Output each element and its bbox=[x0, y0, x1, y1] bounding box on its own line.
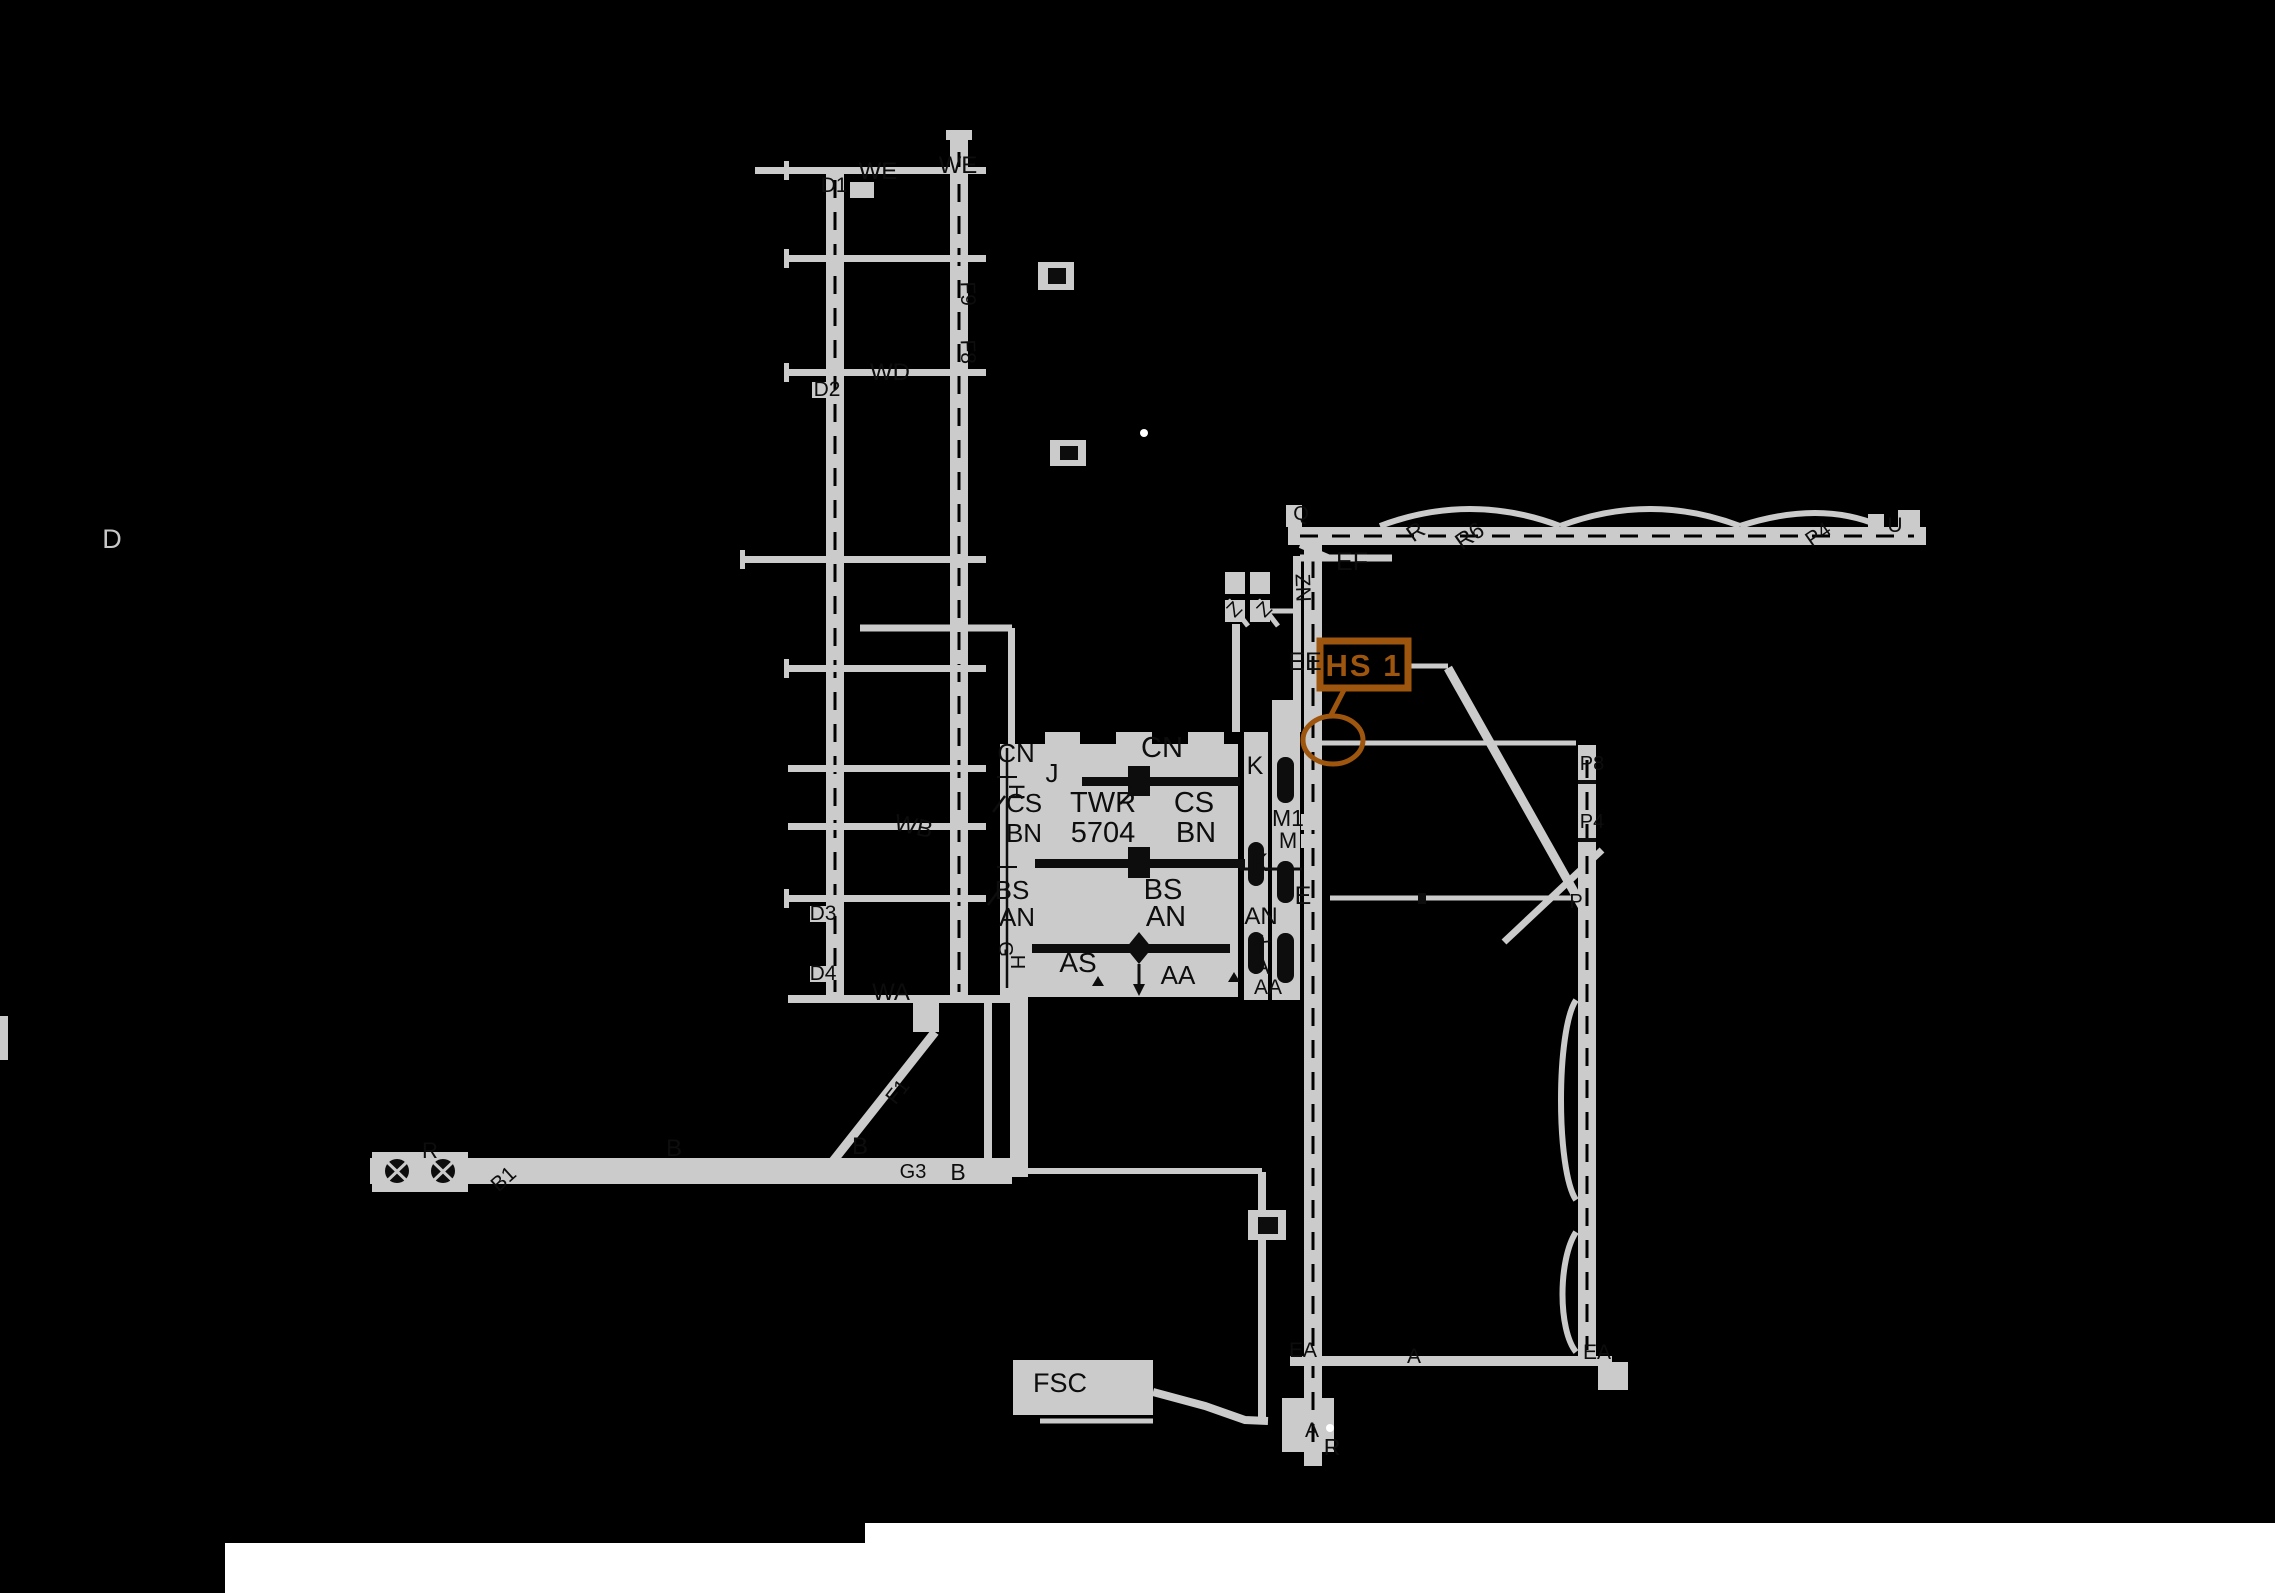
pad-d4-label: D4 bbox=[810, 962, 837, 985]
taxiway-cn-label: CN bbox=[997, 738, 1035, 768]
taxiway-k-label: K bbox=[1247, 752, 1264, 780]
taxiway-an-label: AN bbox=[1244, 903, 1277, 930]
pad-d1-label: D1 bbox=[821, 174, 848, 197]
taxiway-wd-label: WD bbox=[870, 359, 910, 386]
airport-diagram-canvas: HS 1 WEWED1D2WDF9F8WBD3D4WADRB1BBF1G3BFS… bbox=[0, 0, 2275, 1593]
taxiway-j-label: J bbox=[1046, 758, 1059, 788]
taxiway-r-segment bbox=[1258, 1172, 1266, 1424]
taxiway-cs-label: CS bbox=[1174, 787, 1214, 819]
taxiway-ea bbox=[1290, 1356, 1612, 1366]
taxiway-ef-label: EF bbox=[1336, 548, 1368, 576]
taxiway-b-label: B bbox=[950, 1159, 965, 1185]
chart-margin-tick bbox=[0, 1016, 8, 1060]
taxiway-an-label: AN bbox=[1146, 901, 1186, 933]
taxiway-e-label: E bbox=[1295, 882, 1312, 910]
hold-p8-label: P8 bbox=[1580, 753, 1604, 775]
taxiway-a-label: A bbox=[1305, 1419, 1319, 1442]
hotspot-hs1-label: HS 1 bbox=[1326, 648, 1403, 683]
taxiway-aa-label: AA bbox=[1254, 976, 1282, 999]
taxiway-h-label: H bbox=[1006, 955, 1028, 969]
taxiway-we-label: WE bbox=[939, 152, 978, 179]
taxiway-bn-label: BN bbox=[1176, 817, 1216, 849]
hold-line bbox=[1578, 838, 1596, 842]
terminal-south-feeder bbox=[1010, 995, 1028, 1177]
taxiway-p-label: P bbox=[1569, 891, 1582, 913]
hold-line bbox=[1578, 780, 1596, 784]
runway-end-pad bbox=[946, 130, 972, 140]
taxiway-cn-label: CN bbox=[1141, 732, 1183, 764]
taxiway-b-label: B bbox=[852, 1133, 868, 1160]
taxiway-wa-label: WA bbox=[872, 979, 910, 1006]
taxiway-ea-label: EA bbox=[1583, 1341, 1611, 1364]
runway-end-pad bbox=[1868, 514, 1884, 528]
taxiway-we-label: WE bbox=[859, 158, 898, 185]
taxiway-g-segment bbox=[984, 998, 992, 1174]
taxiway-f9-label: F9 bbox=[956, 281, 980, 306]
taxiway-bs-label: BS bbox=[995, 875, 1030, 905]
airport-diagram: HS 1 WEWED1D2WDF9F8WBD3D4WADRB1BBF1G3BFS… bbox=[0, 0, 2275, 1593]
reference-dot bbox=[1140, 429, 1148, 437]
taxiway-stub bbox=[913, 1002, 939, 1032]
reference-dot bbox=[1326, 1424, 1334, 1432]
hold-pad bbox=[1301, 834, 1316, 848]
hold-p4-label: P4 bbox=[1580, 811, 1604, 833]
taxiway-k-label: K bbox=[1252, 849, 1269, 877]
taxiway-u-label: U bbox=[1887, 514, 1902, 537]
taxiway-r-label: R bbox=[1324, 1434, 1341, 1460]
taxiway-aa-label: AA bbox=[1161, 960, 1196, 990]
hold-pad bbox=[1598, 1362, 1628, 1390]
concourse-c-building bbox=[1082, 777, 1240, 786]
taxiway-an-label: AN bbox=[999, 902, 1035, 932]
fsc-building-label: FSC bbox=[1033, 1368, 1087, 1398]
pad-d3-label: D3 bbox=[810, 902, 837, 925]
taxiway-d-label: D bbox=[102, 524, 122, 554]
taxiway-b-label: B bbox=[666, 1135, 682, 1162]
tower-label: TWR bbox=[1070, 787, 1136, 819]
taxiway-ee-label: EE bbox=[1288, 648, 1321, 676]
taxiway-bn-label: BN bbox=[1006, 818, 1042, 848]
taxiway-as-label: AS bbox=[1059, 947, 1096, 978]
taxiway-r-label: R bbox=[422, 1138, 438, 1163]
taxiway-cs-label: CS bbox=[1006, 788, 1042, 818]
tower-elevation-label: 5704 bbox=[1071, 817, 1136, 849]
taxiway-f8-label: F8 bbox=[956, 339, 980, 364]
taxiway-zn-label: ZN bbox=[1291, 573, 1315, 602]
taxiway-g3-label: G3 bbox=[900, 1161, 927, 1183]
taxiway-q-label: Q bbox=[1293, 503, 1309, 525]
taxiway-m-label: M bbox=[1279, 828, 1297, 853]
taxiway-ea-label: EA bbox=[1289, 1339, 1317, 1362]
pad-d2-label: D2 bbox=[814, 378, 841, 401]
taxiway-a-label: A bbox=[1407, 1345, 1421, 1368]
hold-pad-grid bbox=[1225, 572, 1245, 594]
